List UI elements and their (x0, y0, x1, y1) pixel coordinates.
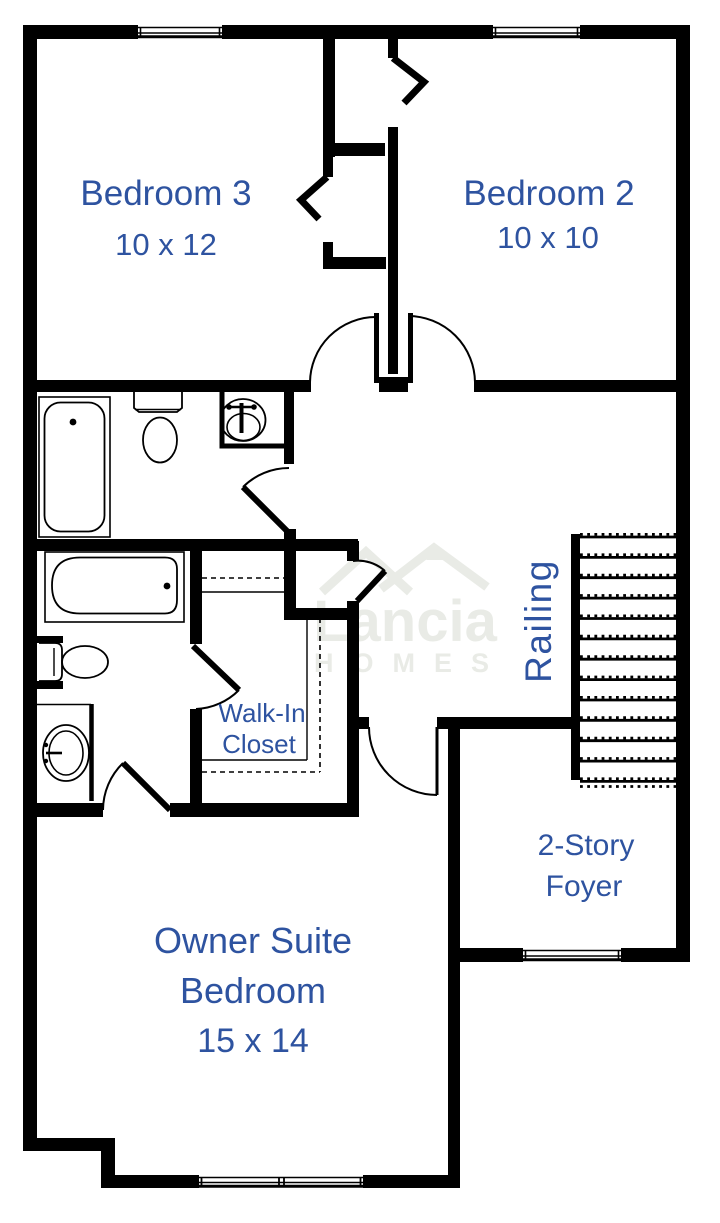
svg-text:2-Story: 2-Story (538, 829, 635, 862)
svg-text:15 x 14: 15 x 14 (197, 1022, 309, 1060)
svg-text:Closet: Closet (222, 729, 296, 759)
svg-text:Foyer: Foyer (546, 870, 623, 903)
svg-text:10 x 12: 10 x 12 (115, 227, 217, 262)
svg-text:Walk-In: Walk-In (218, 698, 305, 728)
svg-text:HOMES: HOMES (314, 648, 508, 678)
svg-text:Owner Suite: Owner Suite (154, 920, 352, 961)
svg-text:Bedroom 2: Bedroom 2 (463, 174, 634, 213)
svg-text:Bedroom: Bedroom (180, 970, 326, 1011)
svg-text:10 x 10: 10 x 10 (497, 220, 599, 255)
svg-text:Bedroom 3: Bedroom 3 (80, 174, 251, 213)
svg-text:Railing: Railing (518, 559, 559, 683)
svg-text:Lancia: Lancia (313, 589, 497, 654)
